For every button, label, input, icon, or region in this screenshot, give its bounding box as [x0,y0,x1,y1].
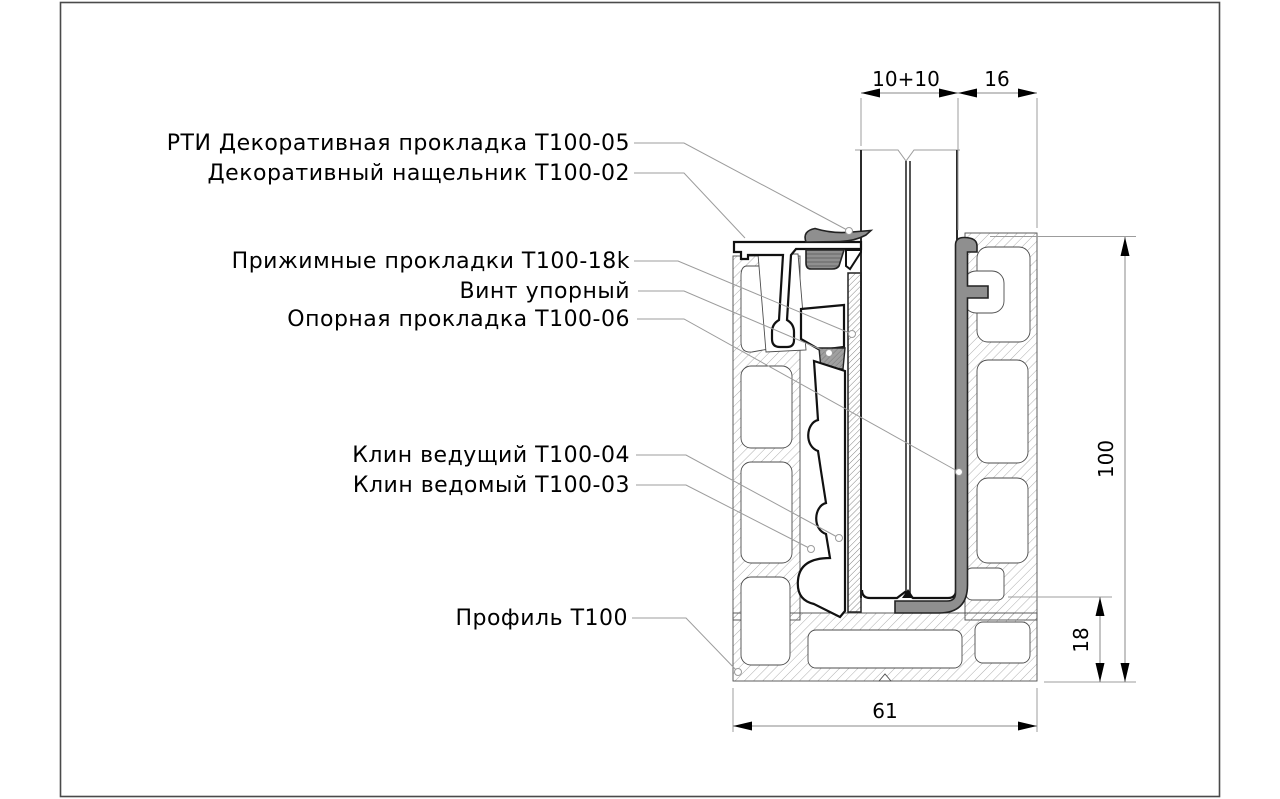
part-labels: РТИ Декоративная прокладка Т100-05 Декор… [167,131,630,631]
dim-arrow [1018,89,1037,98]
profile-t100 [733,233,1037,681]
dim-arrow [1121,663,1130,682]
dim-arrow [1096,597,1105,616]
dim-value-height: 100 [1094,440,1118,478]
leader-dot [808,546,815,553]
rti-gasket-block [806,250,844,269]
profile-cavity [977,478,1028,563]
label-rti-gasket: РТИ Декоративная прокладка Т100-05 [167,131,630,156]
dim-arrow [1096,663,1105,682]
technical-drawing: 10+10 16 100 18 61 РТИ Декоративная прок… [0,0,1280,799]
profile-cavity [741,577,790,665]
label-stop-screw: Винт упорный [460,279,630,304]
leader-cover-strip [634,173,745,238]
dim-value-edge: 16 [984,67,1009,91]
profile-step-notch [966,568,1004,600]
dim-arrow [1121,237,1130,256]
dim-value-width: 61 [872,699,897,723]
profile-cavity [741,462,792,563]
leader-dot [849,331,856,338]
dim-arrow [958,89,977,98]
dim-arrow [939,89,958,98]
label-profile: Профиль Т100 [455,606,628,631]
profile-cavity [977,360,1028,463]
cover-strip-glazing-leg [846,250,861,269]
label-driving-wedge: Клин ведущий Т100-04 [352,443,630,468]
glass-break-line [855,150,960,161]
label-clamp-pads: Прижимные прокладки Т100-18k [232,249,630,274]
leader-dot [826,350,833,357]
wedge-assembly [798,305,845,617]
leader-profile [632,618,738,672]
profile-cavity [975,622,1030,663]
label-driven-wedge: Клин ведомый Т100-03 [353,473,630,498]
leader-dot [735,669,742,676]
dim-arrow [1018,722,1037,731]
drawing-sheet: 10+10 16 100 18 61 РТИ Декоративная прок… [0,0,1280,799]
leader-dot [846,228,853,235]
label-cover-strip: Декоративный нащельник Т100-02 [207,161,630,186]
dim-arrow [733,722,752,731]
glass-unit [855,150,960,598]
dim-value-offset: 18 [1069,627,1093,652]
sheet-border [61,3,1220,797]
leader-dot [956,469,963,476]
profile-base-hole [808,630,962,668]
clamp-pad [848,273,861,612]
dim-value-glass: 10+10 [872,67,940,91]
leader-dot [836,535,843,542]
profile-cavity [741,366,792,448]
leader-rti-gasket [634,143,849,231]
driven-wedge [798,361,845,617]
label-support-gasket: Опорная прокладка Т100-06 [287,307,630,332]
